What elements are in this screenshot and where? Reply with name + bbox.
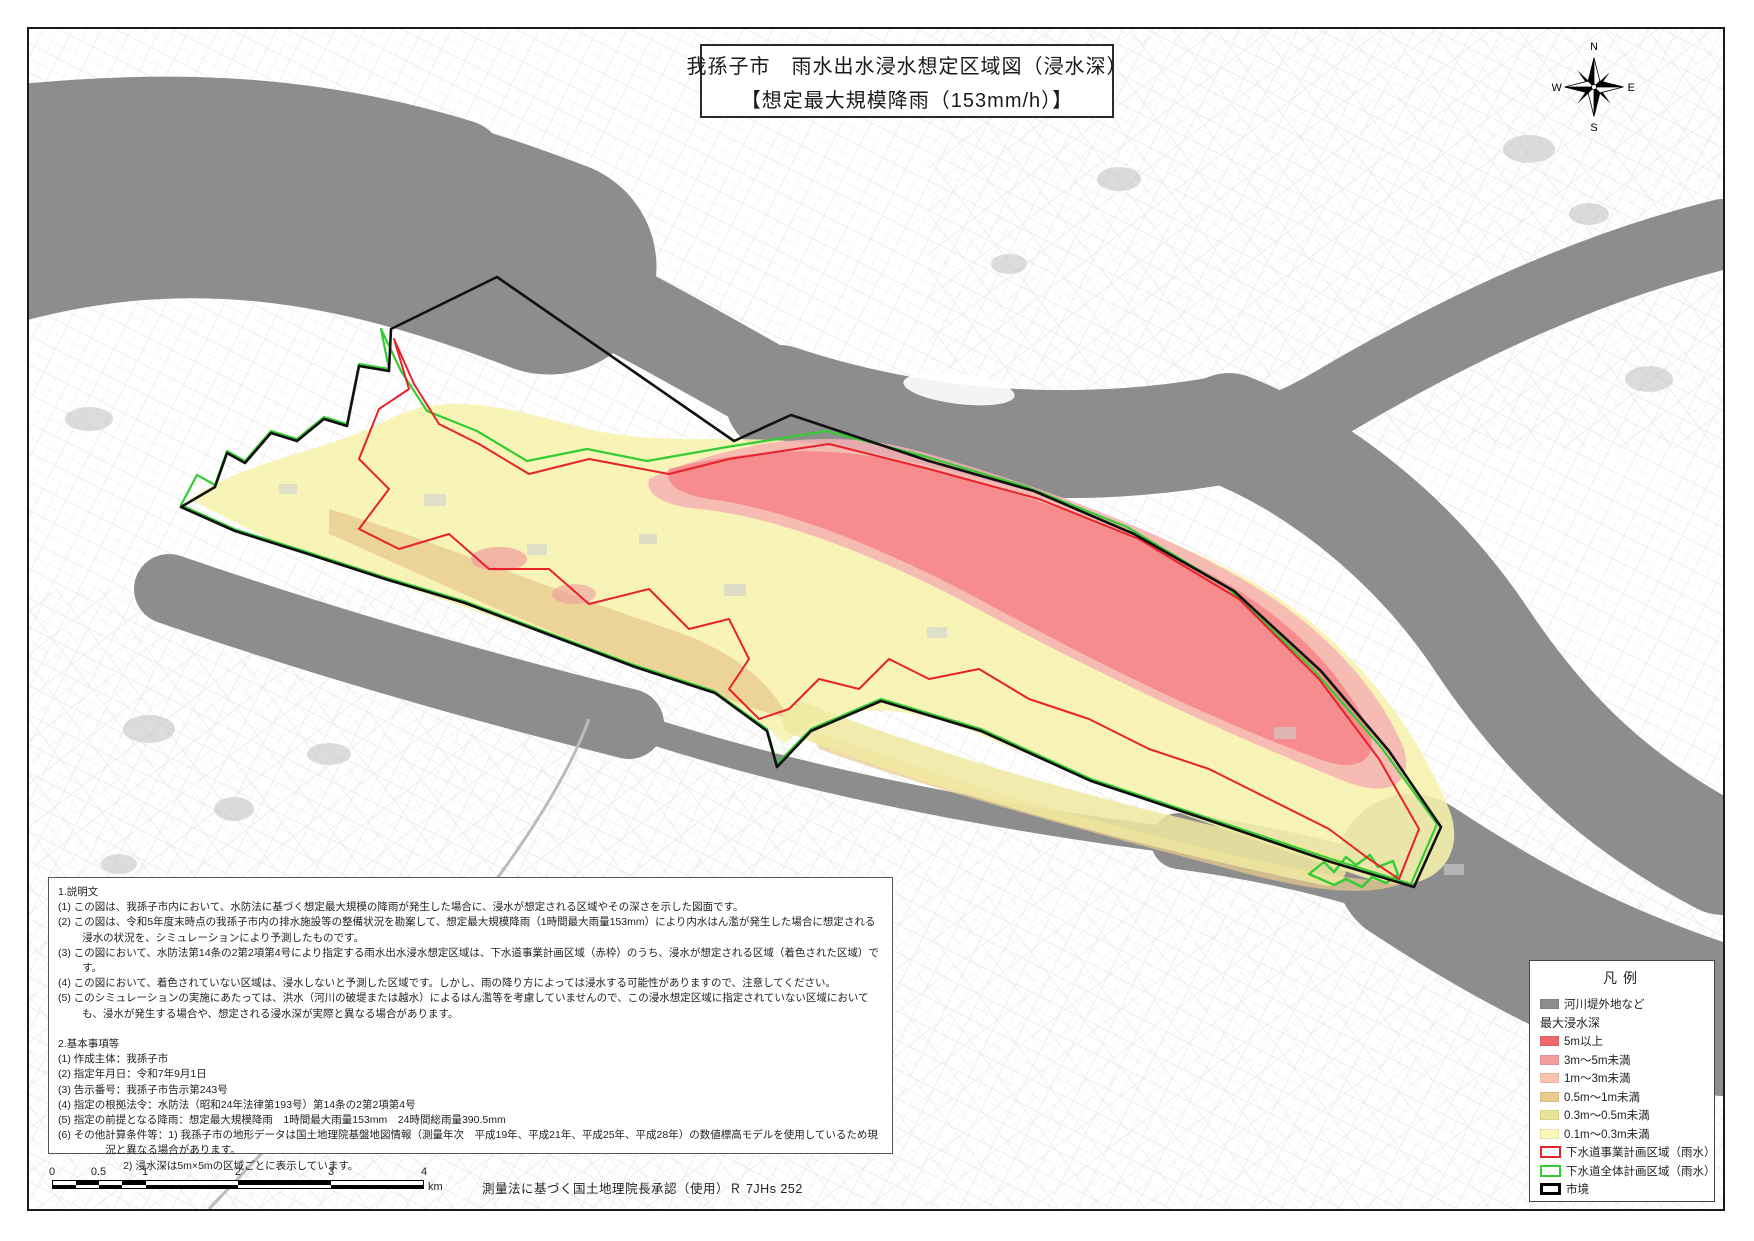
- river-area-swatch: [1540, 999, 1559, 1009]
- compass-east-label: E: [1628, 82, 1635, 94]
- legend-row-sewerage-business: 下水道事業計画区域（雨水）: [1540, 1143, 1706, 1162]
- scale-tick-2: 2: [235, 1166, 241, 1178]
- legend-row-depth: 1m〜3m未満: [1540, 1069, 1706, 1088]
- legend-depth-label: 5m以上: [1564, 1033, 1603, 1049]
- scale-bar-graphic: [52, 1180, 424, 1189]
- scale-tick-0_5: 0.5: [91, 1166, 106, 1178]
- legend-depth-label: 0.3m〜0.5m未満: [1564, 1107, 1650, 1123]
- scale-tick-4: 4: [421, 1166, 427, 1178]
- scale-bar: 0 0.5 1 2 3 4 km: [52, 1166, 492, 1196]
- scale-tick-0: 0: [49, 1166, 55, 1178]
- legend-outline-label: 市境: [1566, 1181, 1589, 1197]
- legend-row-city-boundary: 市境: [1540, 1180, 1706, 1199]
- legend-outline-label: 下水道全体計画区域（雨水）: [1566, 1163, 1716, 1179]
- map-title-line1: 我孫子市 雨水出水浸水想定区域図（浸水深）: [687, 50, 1128, 79]
- legend-outline-label: 下水道事業計画区域（雨水）: [1566, 1144, 1716, 1160]
- scale-tick-3: 3: [328, 1166, 334, 1178]
- notes-section1-title: 1.説明文: [58, 885, 883, 900]
- explanatory-notes-box: 1.説明文 (1) この図は、我孫子市内において、水防法に基づく想定最大規模の降…: [48, 877, 893, 1154]
- depth-swatch-0_5-1m: [1540, 1092, 1559, 1102]
- map-title-line2: 【想定最大規模降雨（153mm/h）】: [741, 84, 1073, 113]
- legend-row-depth: 0.1m〜0.3m未満: [1540, 1125, 1706, 1144]
- legend-box: 凡例 河川堤外地など 最大浸水深 5m以上 3m〜5m未満 1m〜3m未満 0.…: [1529, 960, 1715, 1202]
- note-line: (2) 指定年月日：令和7年9月1日: [58, 1067, 883, 1082]
- legend-depth-label: 0.1m〜0.3m未満: [1564, 1126, 1650, 1142]
- legend-row-depth: 0.5m〜1m未満: [1540, 1088, 1706, 1107]
- note-line: (3) この図において、水防法第14条の2第2項第4号により指定する雨水出水浸水…: [58, 946, 883, 976]
- legend-title: 凡例: [1540, 968, 1706, 988]
- compass-south-label: S: [1590, 122, 1597, 134]
- sewerage-overall-area-swatch: [1540, 1165, 1561, 1177]
- note-line: (4) 指定の根拠法令：水防法（昭和24年法律第193号）第14条の2第2項第4…: [58, 1098, 883, 1113]
- legend-depth-header: 最大浸水深: [1540, 1014, 1706, 1033]
- depth-swatch-3-5m: [1540, 1055, 1559, 1065]
- depth-swatch-1-3m: [1540, 1073, 1559, 1083]
- legend-river-label: 河川堤外地など: [1564, 996, 1645, 1012]
- legend-row-depth: 5m以上: [1540, 1032, 1706, 1051]
- notes-spacer: [58, 1022, 883, 1037]
- depth-swatch-0_3-0_5m: [1540, 1110, 1559, 1120]
- legend-depth-label: 1m〜3m未満: [1564, 1070, 1630, 1086]
- depth-swatch-5m-over: [1540, 1036, 1559, 1046]
- legend-depth-label: 0.5m〜1m未満: [1564, 1089, 1640, 1105]
- legend-depth-label: 3m〜5m未満: [1564, 1052, 1630, 1068]
- note-line: (1) 作成主体：我孫子市: [58, 1052, 883, 1067]
- survey-approval-text: 測量法に基づく国土地理院長承認（使用）Ｒ 7JHs 252: [482, 1178, 803, 1197]
- scale-tick-1: 1: [142, 1166, 148, 1178]
- map-title-box: 我孫子市 雨水出水浸水想定区域図（浸水深） 【想定最大規模降雨（153mm/h）…: [700, 44, 1114, 118]
- legend-row-depth: 3m〜5m未満: [1540, 1051, 1706, 1070]
- note-line: (1) この図は、我孫子市内において、水防法に基づく想定最大規模の降雨が発生した…: [58, 900, 883, 915]
- note-line: (5) このシミュレーションの実施にあたっては、洪水（河川の破堤または越水）によ…: [58, 991, 883, 1021]
- depth-swatch-0_1-0_3m: [1540, 1129, 1559, 1139]
- legend-row-sewerage-overall: 下水道全体計画区域（雨水）: [1540, 1162, 1706, 1181]
- note-line: (4) この図において、着色されていない区域は、浸水しないと予測した区域です。し…: [58, 976, 883, 991]
- legend-row-depth: 0.3m〜0.5m未満: [1540, 1106, 1706, 1125]
- note-line: (3) 告示番号：我孫子市告示第243号: [58, 1083, 883, 1098]
- legend-row-river: 河川堤外地など: [1540, 995, 1706, 1014]
- note-line: (5) 指定の前提となる降雨：想定最大規模降雨 1時間最大雨量153mm 24時…: [58, 1113, 883, 1128]
- note-line: (6) その他計算条件等：1) 我孫子市の地形データは国土地理院基盤地図情報（測…: [58, 1128, 883, 1158]
- compass-west-label: W: [1552, 82, 1563, 94]
- notes-section2-title: 2.基本事項等: [58, 1037, 883, 1052]
- sewerage-business-area-swatch: [1540, 1146, 1561, 1158]
- scale-unit-label: km: [428, 1181, 443, 1193]
- note-line: (2) この図は、令和5年度末時点の我孫子市内の排水施設等の整備状況を勘案して、…: [58, 915, 883, 945]
- city-boundary-swatch: [1540, 1183, 1561, 1195]
- compass-rose-icon: N E S W: [1548, 38, 1640, 136]
- compass-north-label: N: [1590, 41, 1598, 53]
